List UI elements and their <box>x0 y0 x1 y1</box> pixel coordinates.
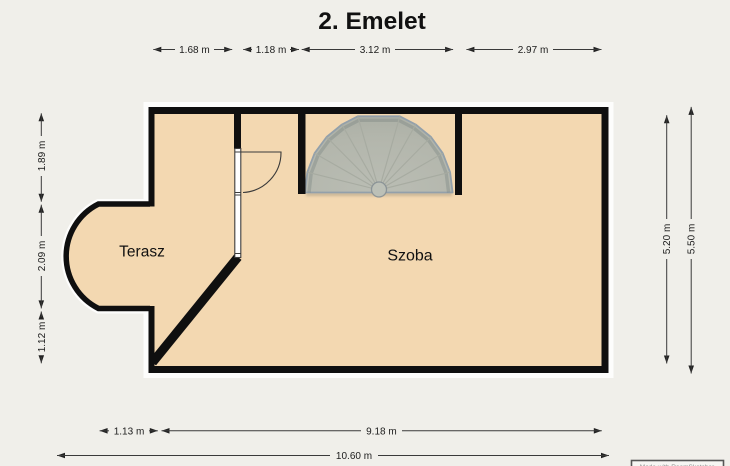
svg-text:5.20 m: 5.20 m <box>662 224 673 255</box>
svg-text:3.12 m: 3.12 m <box>360 45 391 56</box>
svg-text:10.60 m: 10.60 m <box>336 451 372 462</box>
svg-text:1.18 m: 1.18 m <box>256 45 287 56</box>
svg-text:1.13 m: 1.13 m <box>114 426 145 437</box>
svg-text:Szoba: Szoba <box>387 248 432 265</box>
svg-text:Terasz: Terasz <box>119 244 165 261</box>
svg-text:2.97 m: 2.97 m <box>518 45 549 56</box>
svg-text:1.89 m: 1.89 m <box>37 141 48 172</box>
svg-text:9.18 m: 9.18 m <box>366 426 397 437</box>
svg-text:2. Emelet: 2. Emelet <box>318 8 426 35</box>
svg-text:1.68 m: 1.68 m <box>179 45 210 56</box>
svg-text:2.09 m: 2.09 m <box>37 241 48 272</box>
svg-text:5.50 m: 5.50 m <box>687 224 698 255</box>
svg-text:1.12 m: 1.12 m <box>37 322 48 353</box>
